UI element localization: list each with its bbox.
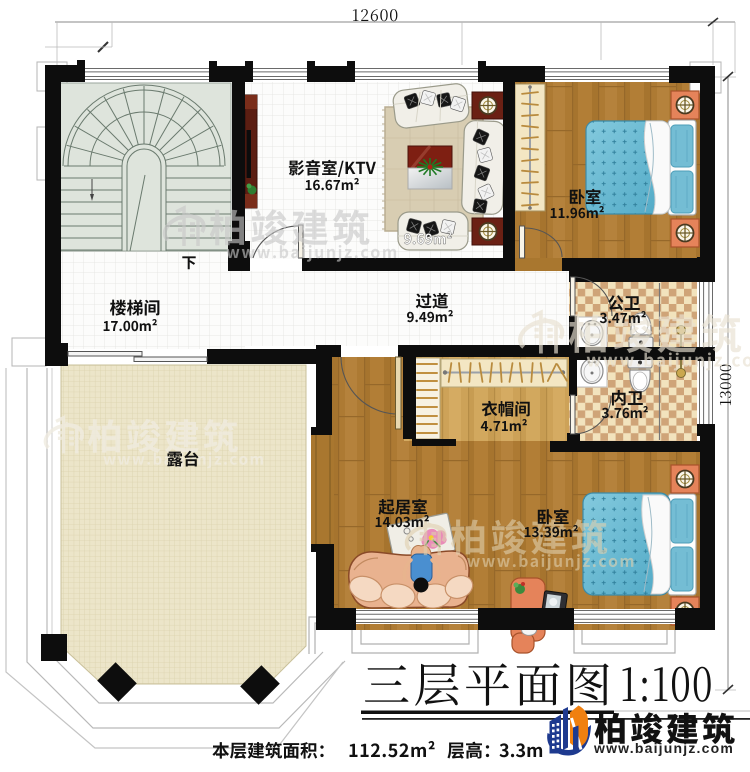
- svg-text:www.baijunjz.com: www.baijunjz.com: [593, 740, 734, 756]
